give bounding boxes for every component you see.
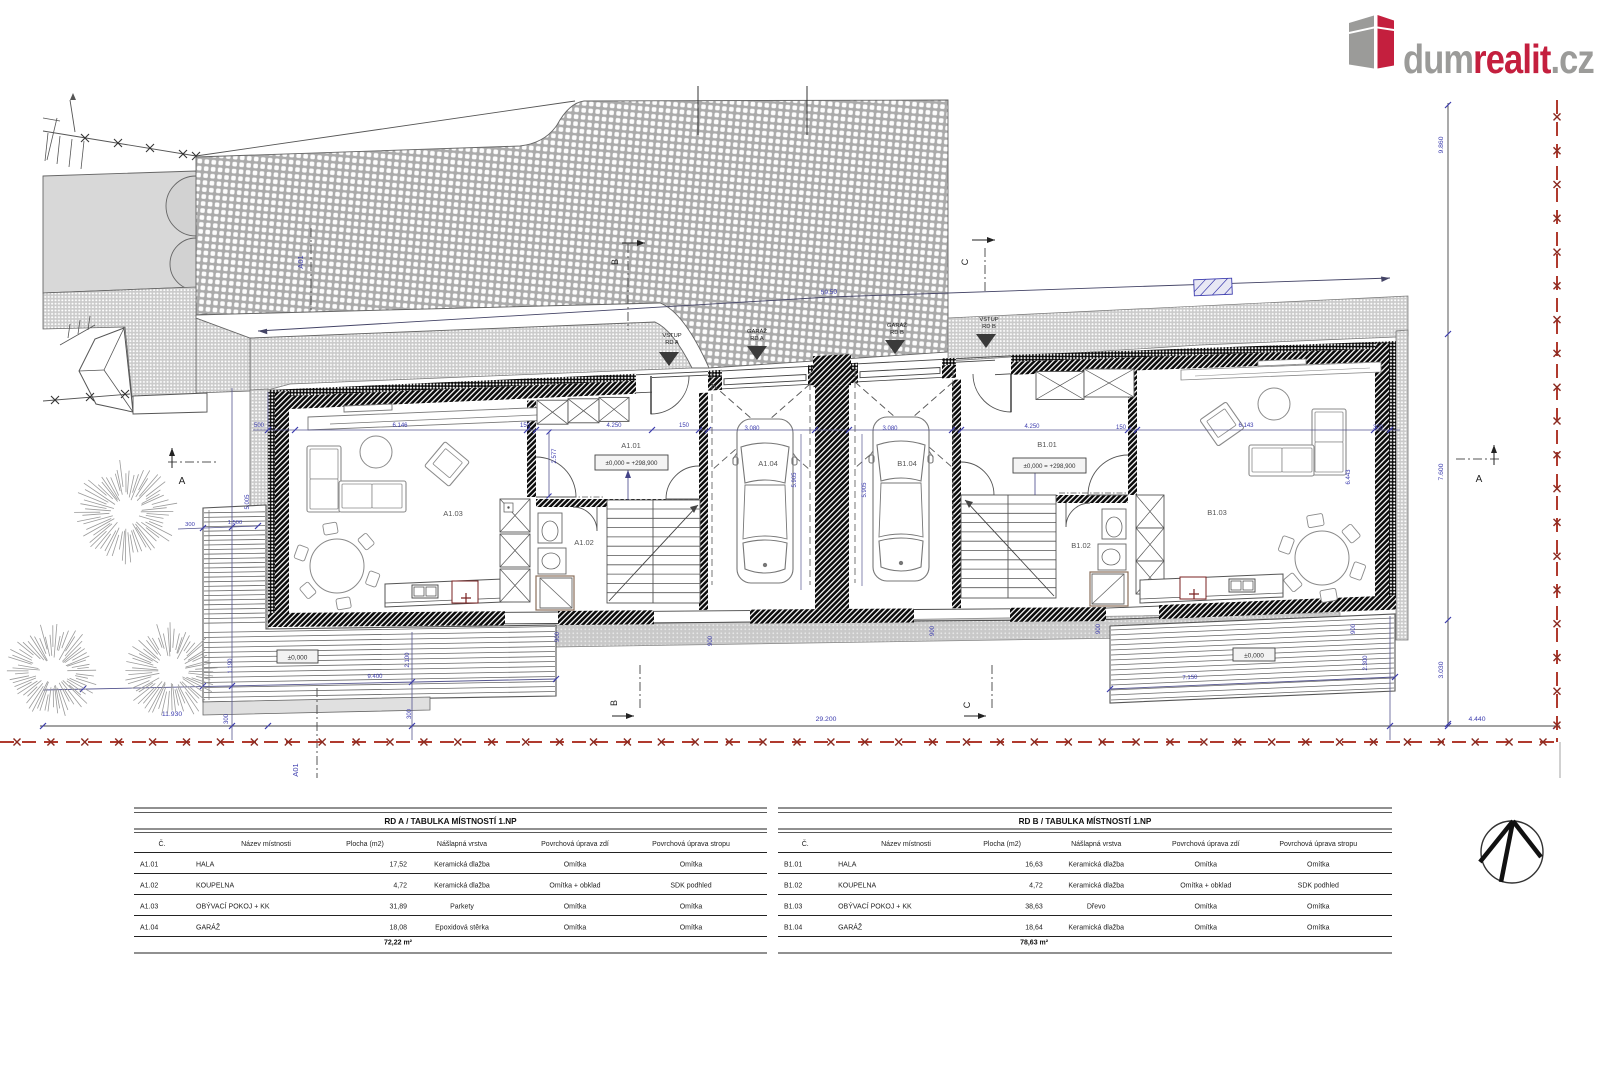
svg-text:A1.03: A1.03 [443,509,463,518]
svg-text:72,22 m²: 72,22 m² [384,940,413,947]
svg-text:Keramická dlažba: Keramická dlažba [1068,862,1124,869]
svg-text:31,89: 31,89 [389,904,407,911]
svg-text:4.440: 4.440 [1468,716,1485,723]
svg-text:Omítka: Omítka [680,925,703,932]
svg-text:RD A / TABULKA MÍSTNOSTÍ 1.NP: RD A / TABULKA MÍSTNOSTÍ 1.NP [384,816,517,826]
svg-text:Omítka: Omítka [564,862,587,869]
svg-text:RD A: RD A [750,336,764,342]
svg-text:Omítka: Omítka [564,925,587,932]
svg-text:A1.04: A1.04 [140,925,158,932]
svg-text:300: 300 [1373,425,1384,431]
svg-text:B1.04: B1.04 [897,459,917,468]
svg-text:Keramická dlažba: Keramická dlažba [1068,925,1124,932]
svg-text:2.577: 2.577 [552,448,558,464]
svg-text:2.300: 2.300 [1363,655,1369,671]
svg-text:B1.03: B1.03 [1207,508,1227,517]
svg-text:Omítka + obklad: Omítka + obklad [1180,883,1231,890]
svg-text:900: 900 [555,631,561,642]
svg-text:4,72: 4,72 [1029,883,1043,890]
svg-text:300: 300 [185,522,195,528]
svg-text:Omítka: Omítka [1195,862,1218,869]
svg-text:Č.: Č. [802,839,809,848]
svg-text:KOUPELNA: KOUPELNA [196,883,234,890]
svg-text:29.200: 29.200 [816,716,837,723]
svg-text:OBÝVACÍ POKOJ + KK: OBÝVACÍ POKOJ + KK [838,902,912,911]
svg-text:Povrchová úprava zdí: Povrchová úprava zdí [1172,841,1240,848]
svg-text:A: A [179,476,186,487]
svg-text:GARÁŽ: GARÁŽ [196,923,221,932]
svg-text:59,50: 59,50 [821,289,838,297]
svg-text:HALA: HALA [196,862,215,869]
svg-text:dumrealit.cz: dumrealit.cz [1403,37,1594,82]
svg-text:18,64: 18,64 [1025,925,1043,932]
svg-text:Nášlapná vrstva: Nášlapná vrstva [1071,841,1121,848]
svg-text:Omítka: Omítka [1307,904,1330,911]
svg-text:A1.01: A1.01 [140,862,158,869]
svg-text:Omítka: Omítka [680,862,703,869]
svg-text:GARÁŽ: GARÁŽ [747,327,767,335]
svg-text:VSTUP: VSTUP [662,333,681,339]
svg-text:1.500: 1.500 [228,520,243,526]
svg-text:5.905: 5.905 [792,472,798,488]
svg-text:RD B: RD B [982,324,996,330]
svg-text:500: 500 [254,423,265,429]
svg-text:150: 150 [520,423,531,429]
svg-text:38,63: 38,63 [1025,904,1043,911]
svg-text:Omítka: Omítka [1195,904,1218,911]
svg-text:RD B: RD B [890,330,904,336]
svg-text:Parkety: Parkety [450,904,474,911]
svg-text:Plocha (m2): Plocha (m2) [346,841,384,848]
svg-text:A1.04: A1.04 [758,459,778,468]
svg-text:C: C [960,258,970,265]
svg-text:B1.01: B1.01 [1037,440,1057,449]
svg-text:4,72: 4,72 [393,883,407,890]
svg-text:Omítka: Omítka [1307,862,1330,869]
svg-text:GARÁŽ: GARÁŽ [838,923,863,932]
svg-text:5.905: 5.905 [862,482,868,498]
svg-text:Název místnosti: Název místnosti [241,841,291,848]
svg-text:Dřevo: Dřevo [1087,904,1106,911]
svg-text:A1.03: A1.03 [140,904,158,911]
svg-text:KOUPELNA: KOUPELNA [838,883,876,890]
svg-text:150: 150 [679,423,690,429]
svg-text:A1.02: A1.02 [574,538,594,547]
svg-text:Keramická dlažba: Keramická dlažba [434,862,490,869]
svg-text:A: A [1476,474,1483,485]
svg-text:B: B [610,259,620,265]
svg-text:900: 900 [930,625,936,636]
svg-text:±0,000: ±0,000 [288,655,308,662]
svg-text:Povrchová úprava zdí: Povrchová úprava zdí [541,841,609,848]
svg-text:3.080: 3.080 [882,426,898,432]
svg-text:RD B / TABULKA MÍSTNOSTÍ 1.NP: RD B / TABULKA MÍSTNOSTÍ 1.NP [1019,816,1152,826]
svg-text:SDK podhled: SDK podhled [670,883,711,890]
svg-text:±0,000: ±0,000 [1244,653,1264,660]
svg-text:VSTUP: VSTUP [979,317,998,323]
svg-text:A1.02: A1.02 [140,883,158,890]
svg-text:150: 150 [1116,425,1127,431]
svg-text:2.100: 2.100 [405,652,411,668]
svg-text:5.005: 5.005 [245,494,251,510]
svg-text:B: B [609,700,619,706]
svg-text:9.860: 9.860 [1438,136,1445,153]
svg-text:6.146: 6.146 [392,423,408,429]
svg-text:18,08: 18,08 [389,925,407,932]
svg-text:C: C [962,701,972,708]
svg-text:RD A: RD A [665,340,679,346]
svg-text:B1.01: B1.01 [784,862,802,869]
svg-text:Nášlapná vrstva: Nášlapná vrstva [437,841,487,848]
svg-text:Název místnosti: Název místnosti [881,841,931,848]
svg-text:7.600: 7.600 [1438,463,1445,480]
svg-text:11.930: 11.930 [162,711,183,718]
svg-text:A01: A01 [296,255,305,268]
svg-text:1.190: 1.190 [228,658,234,674]
svg-text:Epoxidová stěrka: Epoxidová stěrka [435,925,489,932]
svg-text:Keramická dlažba: Keramická dlažba [1068,883,1124,890]
svg-text:Omítka: Omítka [564,904,587,911]
svg-text:B1.02: B1.02 [784,883,802,890]
svg-text:78,63 m²: 78,63 m² [1020,940,1049,947]
svg-text:A01: A01 [291,763,300,776]
svg-text:SDK podhled: SDK podhled [1298,883,1339,890]
svg-text:GARÁŽ: GARÁŽ [887,321,907,329]
svg-text:B1.04: B1.04 [784,925,802,932]
svg-text:±0,000 = +298,900: ±0,000 = +298,900 [606,460,658,467]
svg-text:Keramická dlažba: Keramická dlažba [434,883,490,890]
svg-text:4.250: 4.250 [1024,424,1040,430]
svg-text:HALA: HALA [838,862,857,869]
svg-text:6.143: 6.143 [1238,423,1254,429]
svg-text:B1.03: B1.03 [784,904,802,911]
svg-text:16,63: 16,63 [1025,862,1043,869]
svg-text:9.400: 9.400 [367,674,383,680]
svg-text:Omítka: Omítka [1195,925,1218,932]
svg-text:7.150: 7.150 [1182,675,1198,682]
svg-text:900: 900 [1351,623,1357,634]
svg-text:OBÝVACÍ POKOJ + KK: OBÝVACÍ POKOJ + KK [196,902,270,911]
svg-text:Č.: Č. [159,839,166,848]
svg-text:±0,000 = +298,900: ±0,000 = +298,900 [1024,463,1076,470]
svg-text:Plocha (m2): Plocha (m2) [983,841,1021,848]
svg-text:Omítka + obklad: Omítka + obklad [549,883,600,890]
svg-text:A1.01: A1.01 [621,441,641,450]
svg-text:17,52: 17,52 [389,862,407,869]
svg-text:3.080: 3.080 [744,426,760,432]
svg-text:3.030: 3.030 [1438,661,1445,678]
svg-text:4.250: 4.250 [606,423,622,429]
svg-text:900: 900 [708,635,714,646]
svg-text:B1.02: B1.02 [1071,541,1091,550]
svg-text:Omítka: Omítka [1307,925,1330,932]
svg-text:900: 900 [1096,623,1102,634]
svg-text:300: 300 [224,713,230,724]
svg-text:Povrchová úprava stropu: Povrchová úprava stropu [652,841,730,848]
svg-text:6.443: 6.443 [1346,469,1352,485]
svg-text:Omítka: Omítka [680,904,703,911]
svg-text:Povrchová úprava stropu: Povrchová úprava stropu [1279,841,1357,848]
